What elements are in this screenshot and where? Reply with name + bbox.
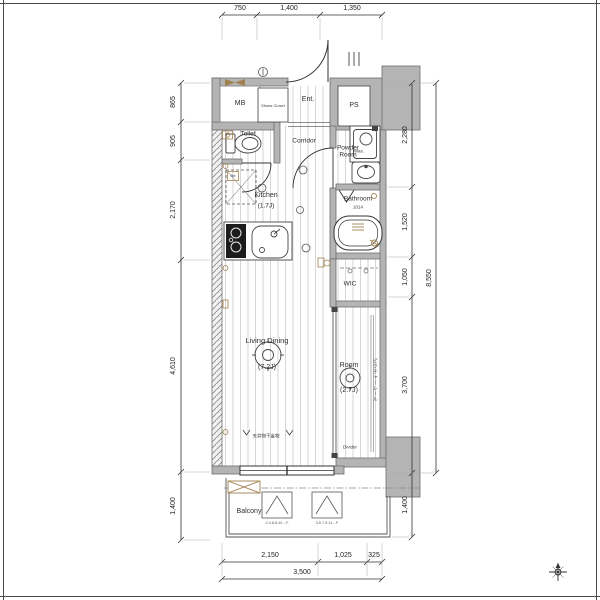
stove-icon: [226, 224, 246, 258]
floor-plan-canvas: [0, 0, 600, 600]
label-balcony: Balcony: [237, 508, 262, 516]
dim-bottom-3500: 3,500: [293, 569, 311, 577]
label-divider: Divider: [343, 444, 357, 449]
label-kitchen-size: (1.7J): [258, 202, 275, 209]
dim-right-1050: 1,050: [402, 268, 410, 286]
dim-right-1520: 1,520: [402, 213, 410, 231]
dim-left-1400: 1,400: [170, 497, 178, 515]
label-refrigerator: Re: [230, 174, 235, 178]
dim-right-2280: 2,280: [402, 126, 410, 144]
dim-left-865: 865: [170, 96, 178, 108]
ps-pipes-icon: [349, 52, 359, 66]
label-living-dining: Living Dining: [246, 337, 289, 345]
label-room: Room: [340, 362, 359, 370]
label-picture-rail: ピクチャーレール: [371, 358, 377, 402]
label-mb: MB: [235, 100, 246, 108]
dim-bottom-325: 325: [368, 552, 380, 560]
label-entrance: Ent.: [302, 96, 314, 104]
dim-left-4610: 4,610: [170, 357, 178, 375]
dim-bottom-1025: 1,025: [334, 552, 352, 560]
dim-top-1350: 1,350: [343, 5, 361, 13]
label-kitchen: Kitchen: [254, 192, 277, 200]
label-living-dining-size: (7.2J): [258, 364, 276, 372]
label-ps: PS: [349, 102, 358, 110]
dim-right-1400: 1,400: [402, 496, 410, 514]
balcony-window-icon: [240, 466, 334, 475]
floor-plan: 750 1,400 1,350 2,150 1,025 325 3,500 86…: [0, 0, 600, 600]
escape-hatch-icon: [262, 492, 342, 518]
dim-right-3700: 3,700: [402, 376, 410, 394]
dim-bottom-2150: 2,150: [261, 552, 279, 560]
label-corridor: Corridor: [292, 137, 315, 144]
label-escape-hatch-even: 2.4.6.8.10…F: [265, 521, 288, 525]
bathtub-icon: [334, 216, 382, 250]
entrance-door-icon: [286, 40, 328, 82]
sink-icon: [252, 226, 288, 258]
dim-top-750: 750: [234, 5, 246, 13]
label-shoes-closet: Shoes Closet: [261, 104, 285, 108]
entrance-mark-icon: [259, 68, 268, 77]
compass-icon: [549, 563, 567, 581]
label-toilet: Toilet: [240, 130, 255, 137]
dim-left-905: 905: [170, 135, 178, 147]
label-bathroom-size: 1014: [353, 204, 363, 209]
label-wic: WIC: [344, 280, 357, 287]
dim-left-2170: 2,170: [170, 201, 178, 219]
dim-right-8550: 8,550: [426, 269, 434, 287]
label-room-size: (2.7J): [340, 387, 358, 395]
exterior-wall-hatched: [212, 130, 222, 466]
label-bathroom: Bathroom: [344, 195, 372, 202]
dim-top-1400: 1,400: [280, 5, 298, 13]
evacuation-hatch-icon: [228, 481, 260, 493]
washbasin-icon: [352, 162, 380, 183]
label-escape-hatch-odd: 3.5.7.9.11…F: [316, 521, 339, 525]
label-washer: Was.: [354, 148, 364, 153]
label-laundry-hanger: 天井物干金物: [253, 433, 280, 438]
